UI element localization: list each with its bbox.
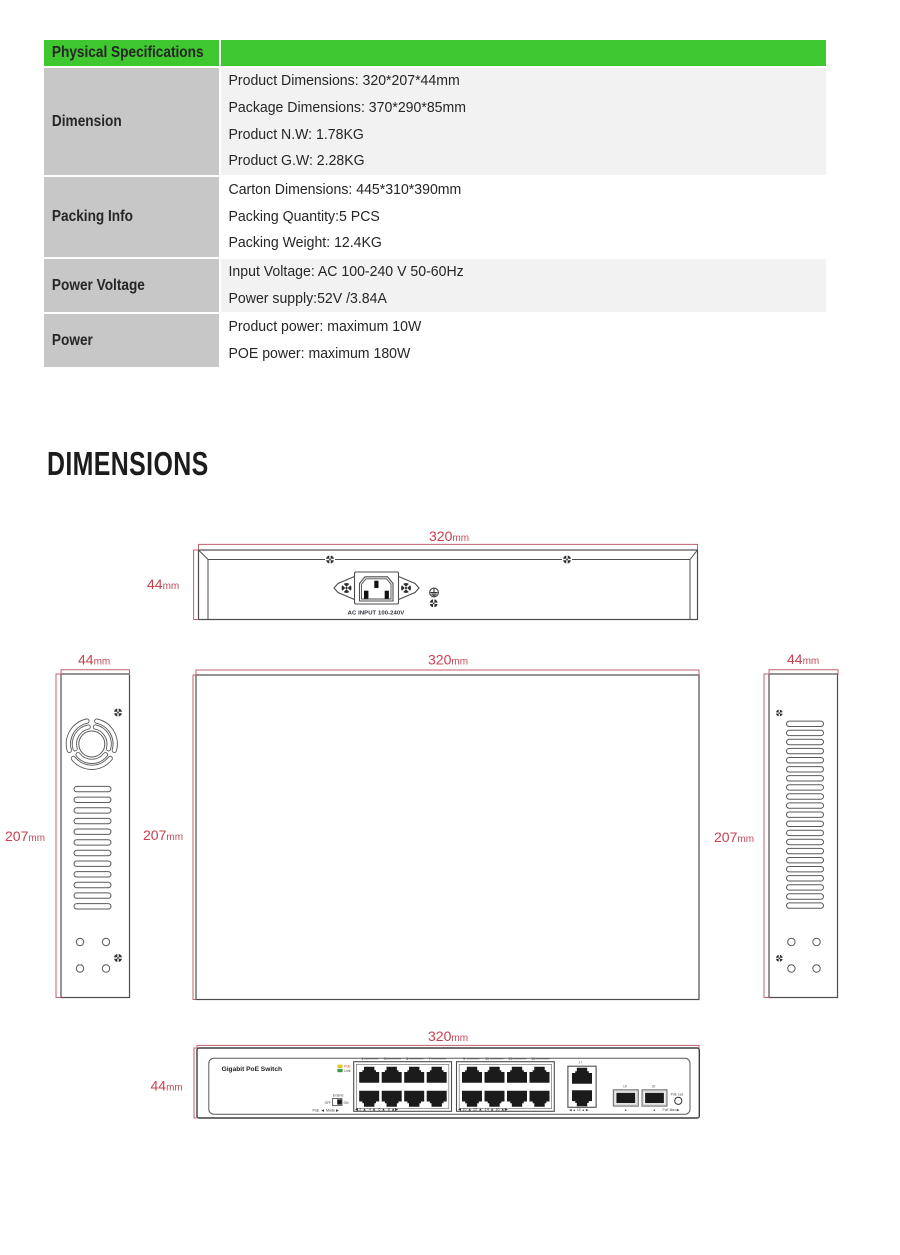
svg-text:207mm: 207mm	[5, 828, 45, 844]
svg-text:OFF: OFF	[325, 1101, 331, 1105]
svg-text:320mm: 320mm	[428, 1028, 468, 1044]
svg-text:◀ 10 ▲ 12 ▲ 14 ▲ 16 ▲▶: ◀ 10 ▲ 12 ▲ 14 ▲ 16 ▲▶	[458, 1106, 509, 1111]
svg-text:◀ 2 ▲ 4 ▲ 6 ▲ 8 ▲▶: ◀ 2 ▲ 4 ▲ 6 ▲ 8 ▲▶	[355, 1106, 399, 1111]
svg-text:44mm: 44mm	[78, 652, 110, 668]
svg-text:Gigabit PoE Switch: Gigabit PoE Switch	[222, 1066, 282, 1073]
svg-text:AC INPUT 100-240V: AC INPUT 100-240V	[348, 611, 405, 617]
svg-text:◀ ▲ 18 ▲ ▶: ◀ ▲ 18 ▲ ▶	[569, 1108, 589, 1112]
svg-text:44mm: 44mm	[151, 1078, 183, 1094]
svg-text:207mm: 207mm	[714, 829, 754, 845]
svg-text:17: 17	[579, 1061, 583, 1065]
svg-text:PoE Max ▶: PoE Max ▶	[663, 1108, 680, 1112]
svg-text:PoE Led: PoE Led	[671, 1092, 684, 1096]
svg-text:20: 20	[652, 1085, 656, 1089]
svg-text:15: 15	[531, 1056, 536, 1061]
svg-text:ON: ON	[344, 1101, 349, 1105]
svg-text:▲: ▲	[653, 1108, 656, 1112]
svg-text:44mm: 44mm	[147, 576, 179, 592]
svg-text:207mm: 207mm	[143, 827, 183, 843]
svg-text:PoE ◀ Mode ▶: PoE ◀ Mode ▶	[313, 1109, 341, 1113]
svg-text:▲: ▲	[624, 1108, 627, 1112]
svg-text:320mm: 320mm	[428, 652, 468, 668]
svg-text:Extend: Extend	[333, 1093, 344, 1097]
svg-text:Link: Link	[344, 1069, 351, 1073]
svg-text:44mm: 44mm	[787, 651, 819, 667]
svg-text:13: 13	[508, 1056, 513, 1061]
svg-text:19: 19	[623, 1085, 627, 1089]
svg-text:320mm: 320mm	[429, 528, 469, 544]
